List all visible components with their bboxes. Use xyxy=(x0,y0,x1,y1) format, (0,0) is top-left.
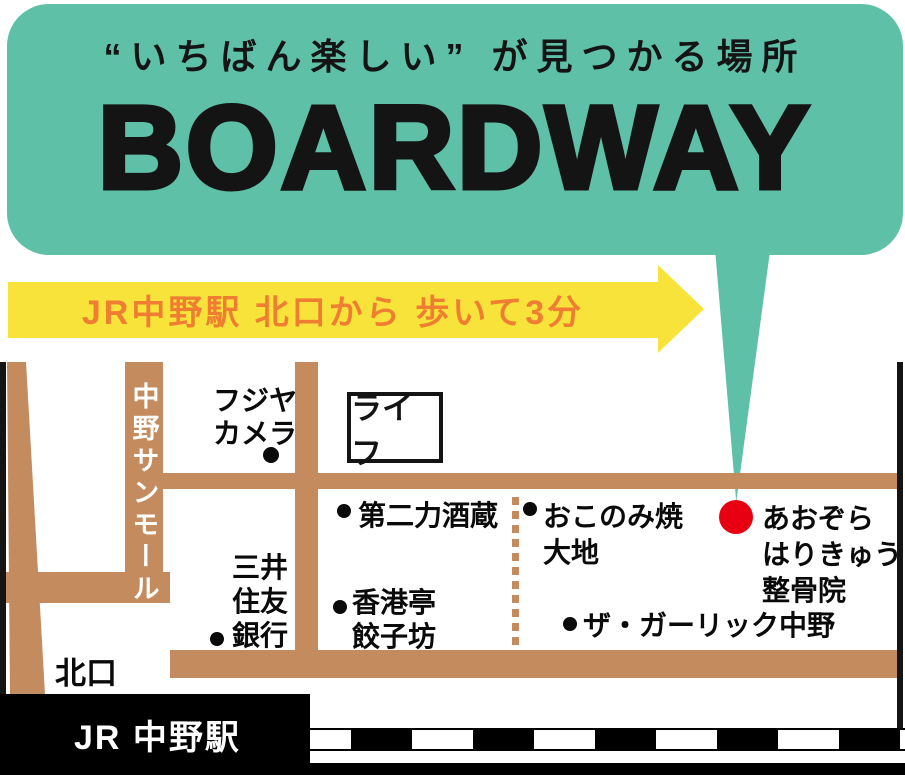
station-label: JR 中野駅 xyxy=(0,710,241,759)
north-exit-label: 北口 xyxy=(55,657,117,691)
destination-marker xyxy=(719,500,753,534)
honkontei-dot-icon xyxy=(333,600,347,614)
landmark-mitsui-bank: 三井 住友 銀行 xyxy=(232,551,288,653)
street-vertical-center xyxy=(295,362,318,678)
landmark-aozora-clinic: あおぞら はりきゅう 整骨院 xyxy=(762,501,902,609)
railway-track-icon xyxy=(310,728,905,751)
railway-base-strip xyxy=(310,765,905,775)
boardway-access-map: “いちばん楽しい” が見つかる場所 BOARDWAY JR中野駅 北口から 歩い… xyxy=(0,0,905,775)
landmark-dainiriki: 第二力酒蔵 xyxy=(358,499,498,533)
landmark-fujiya-camera: フジヤ カメラ xyxy=(213,384,297,450)
station-bar: JR 中野駅 xyxy=(0,694,310,775)
railway-platform-strip xyxy=(310,751,905,765)
street-main-horizontal xyxy=(163,473,897,489)
brand-logo: BOARDWAY xyxy=(7,84,903,214)
mitsui-dot-icon xyxy=(210,632,224,646)
landmark-garlic-nakano: ザ・ガーリック中野 xyxy=(583,609,835,643)
sunmall-street-label: 中野サンモール xyxy=(125,382,164,606)
landmark-honkontei: 香港亭 餃子坊 xyxy=(352,586,436,654)
landmark-life-label: ライフ xyxy=(351,383,439,473)
tagline: “いちばん楽しい” が見つかる場所 xyxy=(7,28,903,80)
access-arrow-head-icon xyxy=(658,265,704,353)
garlic-dot-icon xyxy=(563,617,577,631)
street-lower-horizontal xyxy=(170,650,897,678)
access-arrow-label: JR中野駅 北口から 歩いて3分 xyxy=(82,285,584,336)
fujiya-dot-icon xyxy=(263,447,279,463)
street-nakano-sunmall: 中野サンモール xyxy=(125,362,163,603)
speech-bubble-pointer xyxy=(710,250,774,502)
landmark-life-box: ライフ xyxy=(347,392,443,463)
street-dotted-alley xyxy=(512,497,519,648)
okonomiyaki-dot-icon xyxy=(523,502,537,516)
access-arrow: JR中野駅 北口から 歩いて3分 xyxy=(8,282,658,338)
street-left-slanted xyxy=(0,362,50,694)
landmark-okonomiyaki-daichi: おこのみ焼 大地 xyxy=(543,499,683,571)
dainiriki-dot-icon xyxy=(337,504,351,518)
